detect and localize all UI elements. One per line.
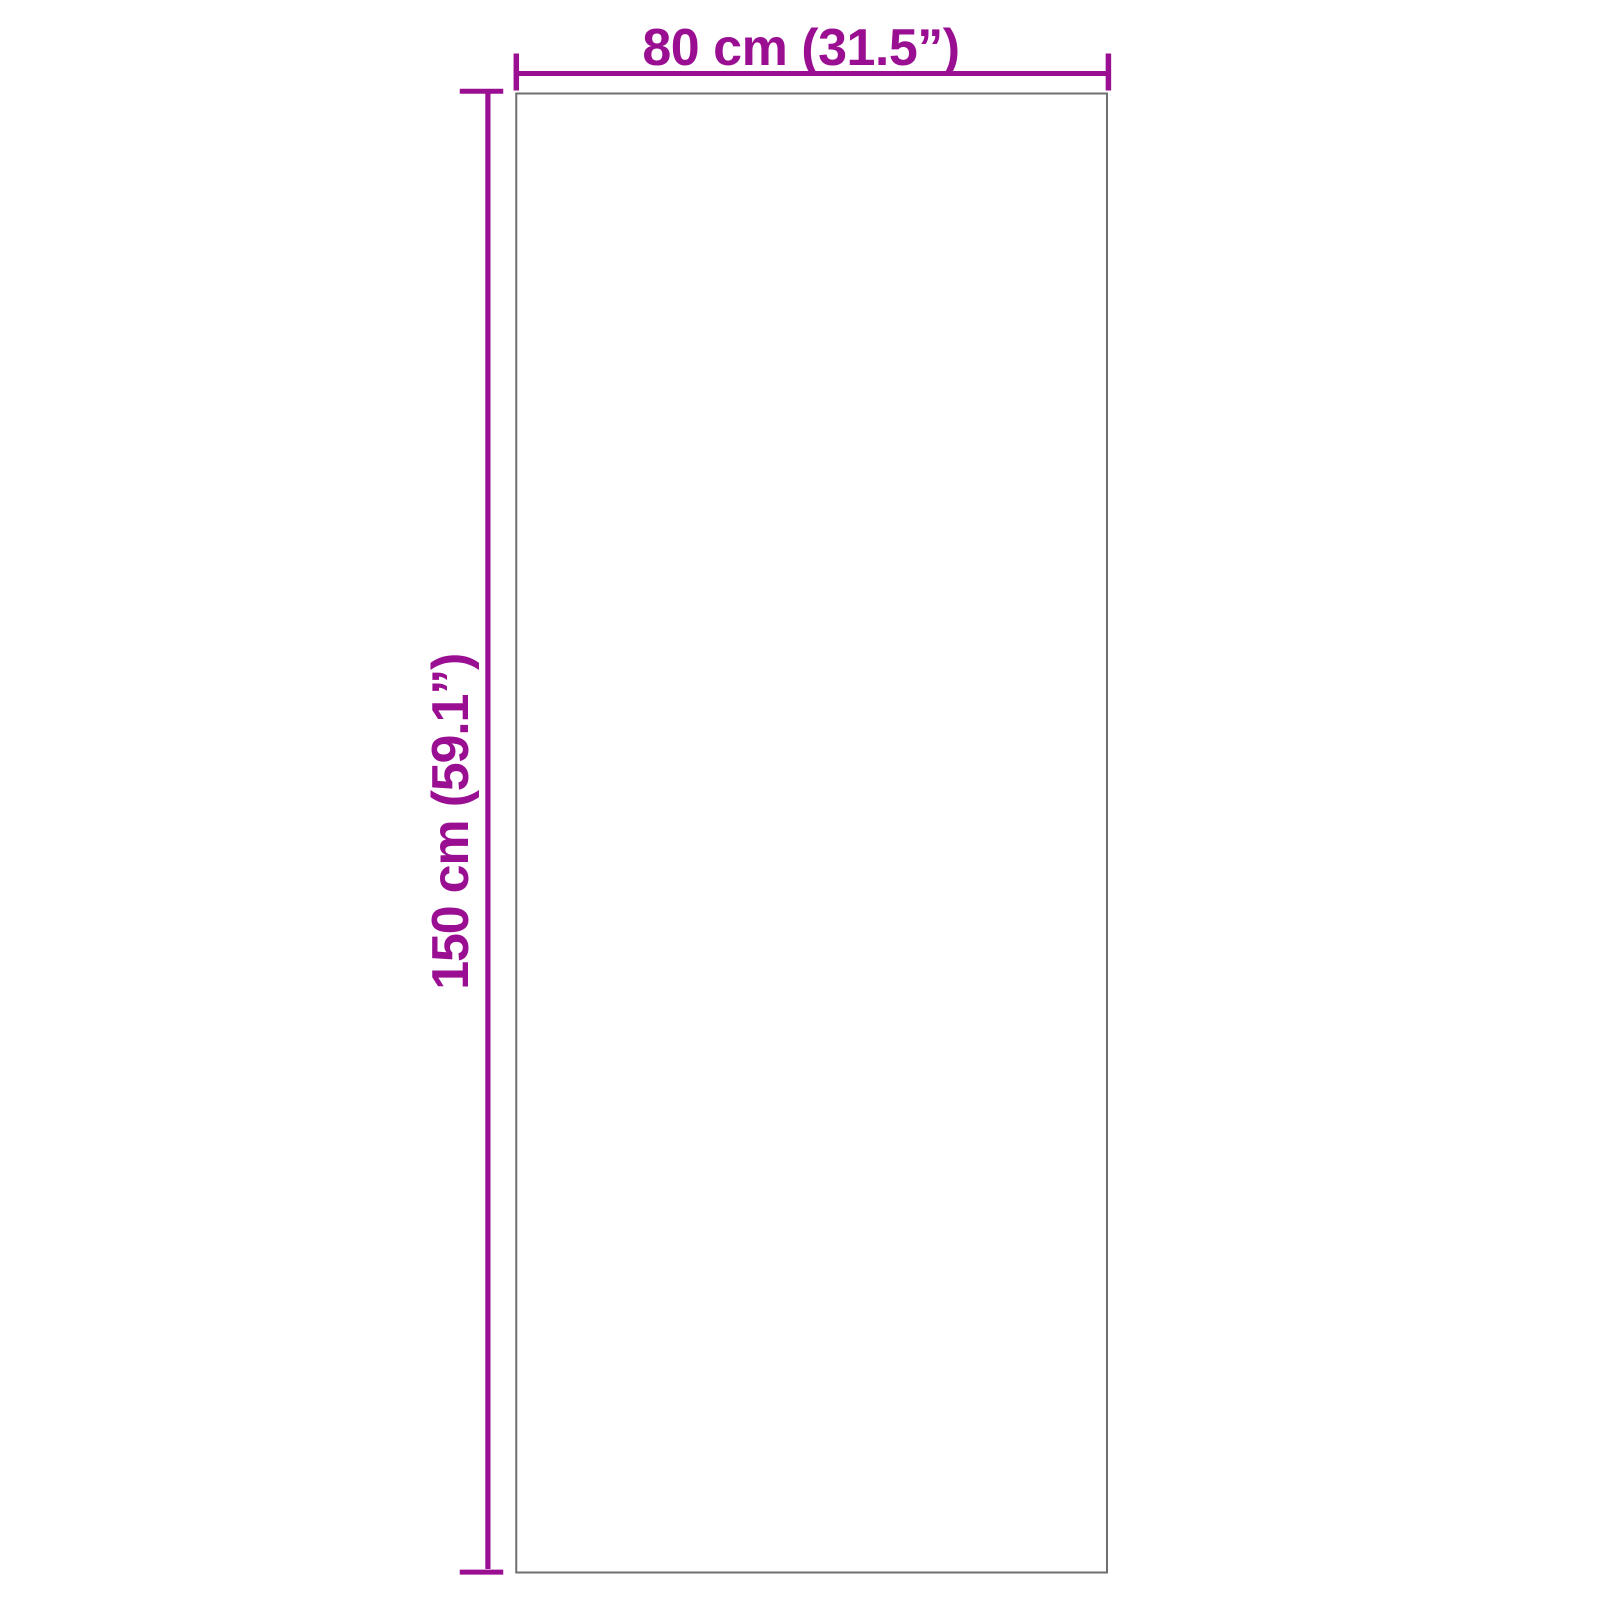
svg-text:80 cm (31.5”): 80 cm (31.5”) <box>642 19 959 77</box>
svg-text:150 cm (59.1”): 150 cm (59.1”) <box>422 654 480 990</box>
